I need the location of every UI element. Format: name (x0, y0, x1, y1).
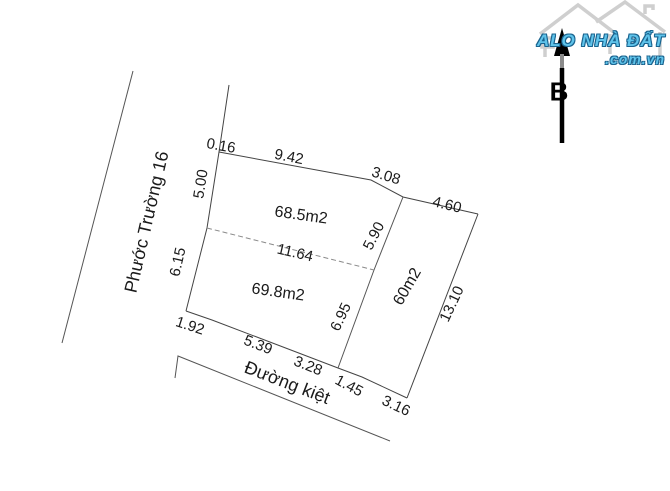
brand-watermark-text: ALO NHÀ ĐẤT (537, 31, 665, 51)
plot-left-boundary (186, 85, 229, 311)
survey-plan-canvas: 0.16 9.42 3.08 4.60 5.00 6.15 11.64 5.90… (0, 0, 670, 491)
road-phuoc-truong-outer-line (62, 71, 133, 343)
plan-linework (0, 0, 670, 491)
north-label: B (550, 77, 569, 108)
brand-watermark-domain: .com.vn (605, 51, 665, 67)
